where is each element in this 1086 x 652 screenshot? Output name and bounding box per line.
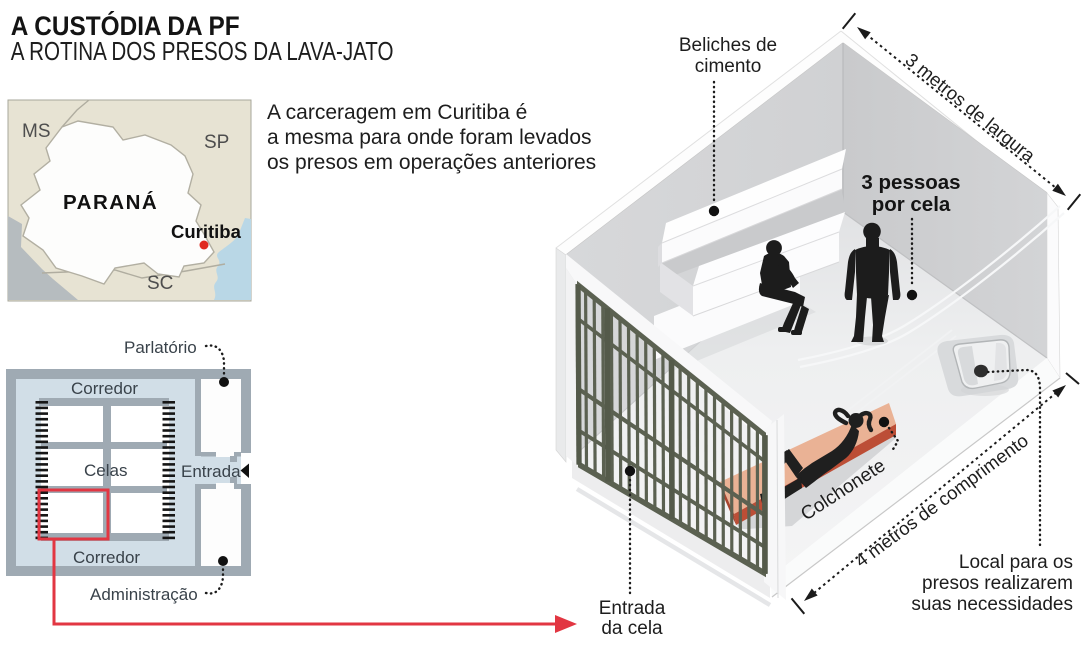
svg-text:por cela: por cela <box>872 193 951 216</box>
svg-text:Corredor: Corredor <box>73 548 140 567</box>
svg-text:3 pessoas: 3 pessoas <box>861 171 960 194</box>
svg-text:Corredor: Corredor <box>71 379 138 398</box>
svg-text:os presos em operações anterio: os presos em operações anteriores <box>267 151 596 174</box>
svg-text:Administração: Administração <box>90 585 198 604</box>
svg-text:Curitiba: Curitiba <box>171 221 242 242</box>
svg-text:MS: MS <box>22 121 51 142</box>
svg-text:da cela: da cela <box>601 618 663 639</box>
svg-text:suas necessidades: suas necessidades <box>911 594 1073 615</box>
svg-text:PARANÁ: PARANÁ <box>63 191 158 214</box>
svg-text:a mesma para onde foram levado: a mesma para onde foram levados <box>267 126 592 149</box>
svg-text:cimento: cimento <box>695 56 762 77</box>
svg-text:SP: SP <box>204 132 229 153</box>
svg-text:Parlatório: Parlatório <box>124 338 197 357</box>
svg-text:Beliches de: Beliches de <box>679 35 777 56</box>
svg-text:Local para os: Local para os <box>959 552 1073 573</box>
svg-text:Entrada: Entrada <box>599 598 666 619</box>
svg-text:SC: SC <box>147 273 173 294</box>
svg-text:Celas: Celas <box>84 461 127 480</box>
svg-text:presos realizarem: presos realizarem <box>922 573 1073 594</box>
svg-text:Entrada: Entrada <box>181 462 241 481</box>
svg-text:A carceragem em Curitiba é: A carceragem em Curitiba é <box>267 101 527 124</box>
svg-text:A ROTINA DOS PRESOS DA LAVA-JA: A ROTINA DOS PRESOS DA LAVA-JATO <box>11 37 394 66</box>
